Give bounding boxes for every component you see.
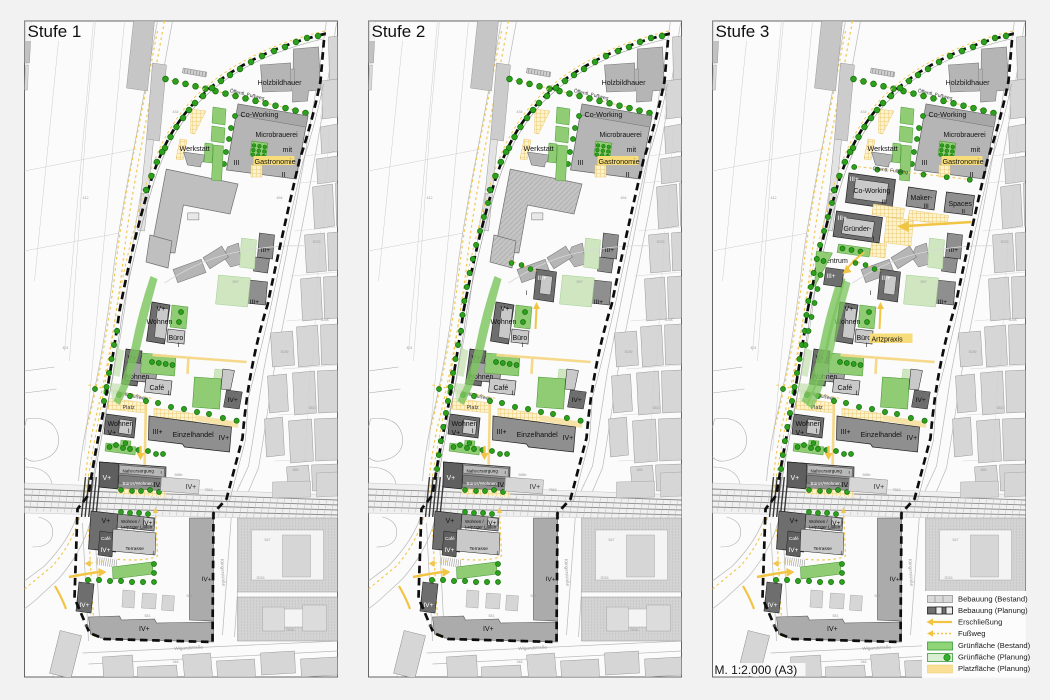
svg-text:Erschließung: Erschließung <box>958 618 1002 627</box>
svg-text:Bebauung (Bestand): Bebauung (Bestand) <box>958 595 1028 604</box>
svg-text:Grünfläche (Planung): Grünfläche (Planung) <box>958 653 1031 662</box>
svg-text:Stufe 3: Stufe 3 <box>716 22 770 41</box>
svg-text:Stufe 2: Stufe 2 <box>372 22 426 41</box>
svg-text:Stufe 1: Stufe 1 <box>28 22 82 41</box>
svg-text:Grünfläche (Bestand): Grünfläche (Bestand) <box>958 641 1031 650</box>
svg-text:III+: III+ <box>882 275 891 282</box>
svg-text:Fußweg: Fußweg <box>958 629 985 638</box>
svg-text:III+: III+ <box>538 275 547 282</box>
svg-text:M. 1:2.000 (A3): M. 1:2.000 (A3) <box>715 663 798 677</box>
svg-text:Bebauung (Planung): Bebauung (Planung) <box>958 606 1028 615</box>
svg-text:Platzfläche (Planung): Platzfläche (Planung) <box>958 664 1031 673</box>
